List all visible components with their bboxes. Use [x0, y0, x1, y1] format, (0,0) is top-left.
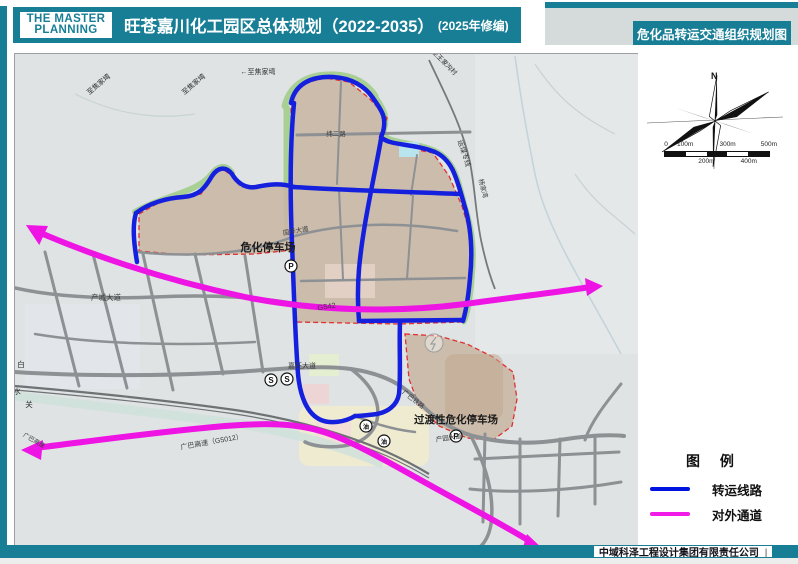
- legend-label: 对外通道: [712, 505, 762, 524]
- map-label: 关: [25, 399, 33, 409]
- scale-tick: 100m: [677, 141, 693, 148]
- scale-bar-segments: [664, 151, 770, 157]
- map-label: 纬二路: [326, 129, 346, 138]
- svg-text:S: S: [268, 376, 274, 385]
- legend-item-transfer: 转运线路: [650, 481, 790, 497]
- planning-map: PPSS油油 危化停车场过渡性危化停车场产城大道嘉旺大道广巴高速（G5012）G…: [14, 53, 639, 547]
- map-label: ←至焦家塆: [241, 67, 276, 76]
- header-bar: THE MASTER PLANNING 旺苍嘉川化工园区总体规划（2022-20…: [13, 7, 521, 43]
- drawing-title-box: 危化品转运交通组织规划图: [633, 21, 791, 45]
- footer-divider: |: [765, 547, 767, 557]
- map-label: 产城大道: [91, 292, 121, 302]
- map-marker-油: 油: [378, 435, 390, 447]
- page-subtitle: (2025年修编): [438, 17, 509, 34]
- map-marker-S: S: [265, 374, 277, 386]
- map-marker-P: P: [285, 260, 297, 272]
- map-canvas: PPSS油油 危化停车场过渡性危化停车场产城大道嘉旺大道广巴高速（G5012）G…: [15, 54, 638, 546]
- external-channel-swatch: [650, 512, 690, 516]
- scale-bar: 0 100m 300m 500m 200m 400m: [664, 141, 770, 171]
- footer-credit-box: 中域科泽工程设计集团有限责任公司 |: [594, 546, 772, 557]
- svg-text:S: S: [284, 375, 290, 384]
- bottom-margin-strip: [0, 558, 798, 564]
- scale-tick: 400m: [741, 158, 757, 165]
- svg-text:P: P: [288, 262, 294, 271]
- top-right-accent-strip: [545, 2, 798, 8]
- design-company: 中域科泽工程设计集团有限责任公司: [599, 544, 759, 559]
- map-label: 危化停车场: [240, 240, 296, 254]
- logo: THE MASTER PLANNING: [20, 12, 112, 38]
- scale-tick: 0: [664, 141, 668, 148]
- scale-tick: 200m: [698, 158, 714, 165]
- drawing-title: 危化品转运交通组织规划图: [637, 24, 787, 43]
- terrain-wash: [475, 54, 638, 354]
- transfer-route-swatch: [650, 487, 690, 491]
- map-label: 嘉旺大道: [288, 361, 316, 370]
- legend-title: 图 例: [686, 451, 742, 471]
- legend-item-external: 对外通道: [650, 506, 790, 522]
- page-title: 旺苍嘉川化工园区总体规划（2022-2035）: [124, 13, 434, 37]
- se-lobe-core: [445, 354, 503, 420]
- logo-line-2: PLANNING: [34, 25, 97, 37]
- legend-label: 转运线路: [712, 480, 762, 499]
- scale-tick: 500m: [761, 141, 777, 148]
- map-label: 白: [17, 359, 25, 369]
- left-accent-strip: [0, 6, 7, 557]
- scale-tick: 300m: [719, 141, 735, 148]
- map-marker-油: 油: [360, 420, 372, 432]
- map-marker-S: S: [281, 373, 293, 385]
- map-side-panel: N 0 100m 300m 500m 200m 400m: [638, 53, 798, 545]
- map-label: 水: [15, 386, 21, 396]
- substation-marker: [425, 334, 443, 352]
- svg-text:油: 油: [381, 438, 387, 446]
- map-label: 过渡性危化停车场: [414, 413, 498, 426]
- svg-text:油: 油: [363, 423, 369, 431]
